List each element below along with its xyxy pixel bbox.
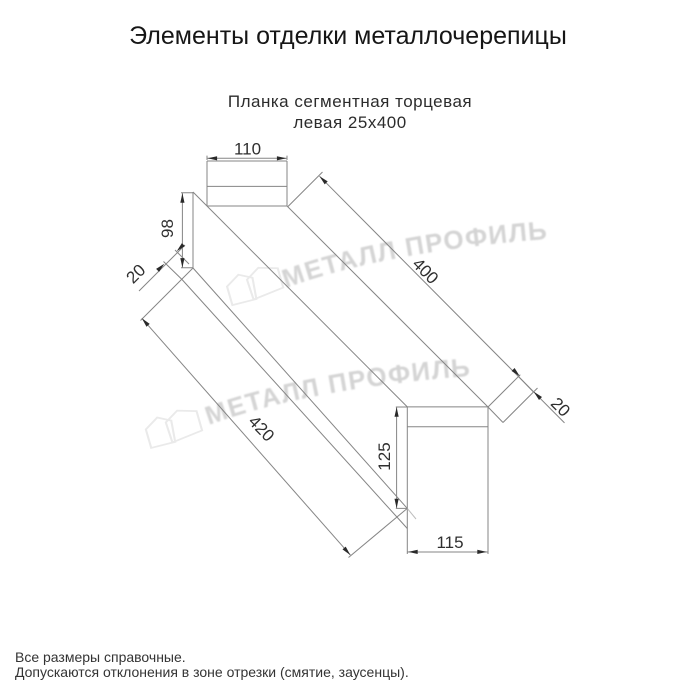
svg-text:20: 20: [547, 394, 574, 421]
svg-text:МЕТАЛЛ ПРОФИЛЬ: МЕТАЛЛ ПРОФИЛЬ: [201, 352, 472, 431]
svg-text:110: 110: [234, 140, 261, 159]
svg-text:98: 98: [158, 219, 177, 238]
svg-text:125: 125: [375, 442, 394, 470]
svg-text:МЕТАЛЛ ПРОФИЛЬ: МЕТАЛЛ ПРОФИЛЬ: [278, 215, 549, 294]
svg-text:20: 20: [123, 261, 150, 288]
svg-text:115: 115: [436, 533, 463, 552]
